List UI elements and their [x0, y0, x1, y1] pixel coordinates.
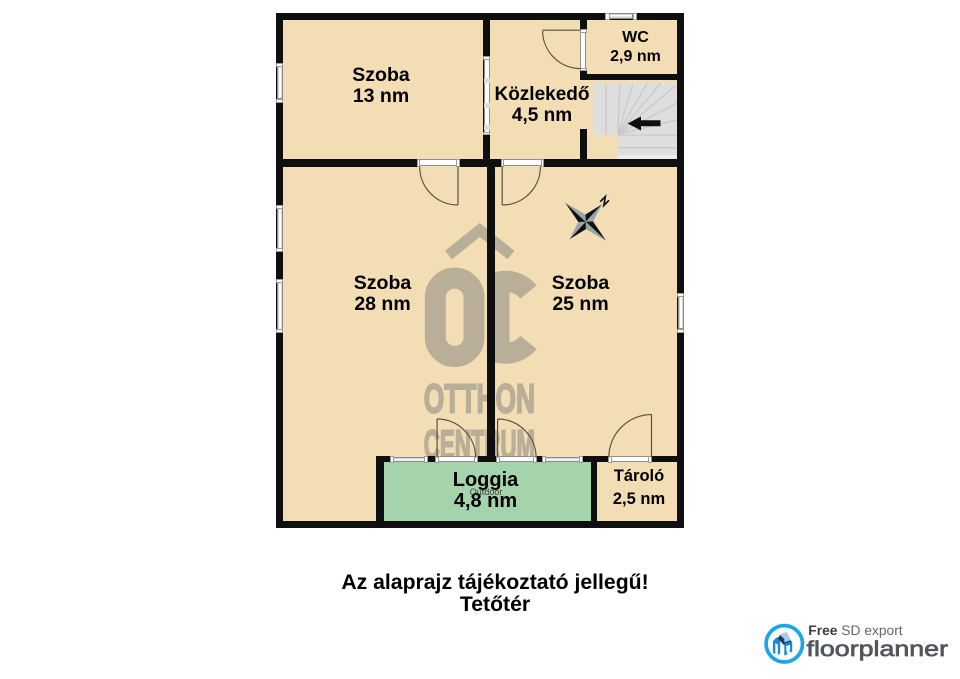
svg-text:Free SD export: Free SD export [808, 623, 902, 638]
svg-text:floorplanner: floorplanner [807, 637, 949, 661]
